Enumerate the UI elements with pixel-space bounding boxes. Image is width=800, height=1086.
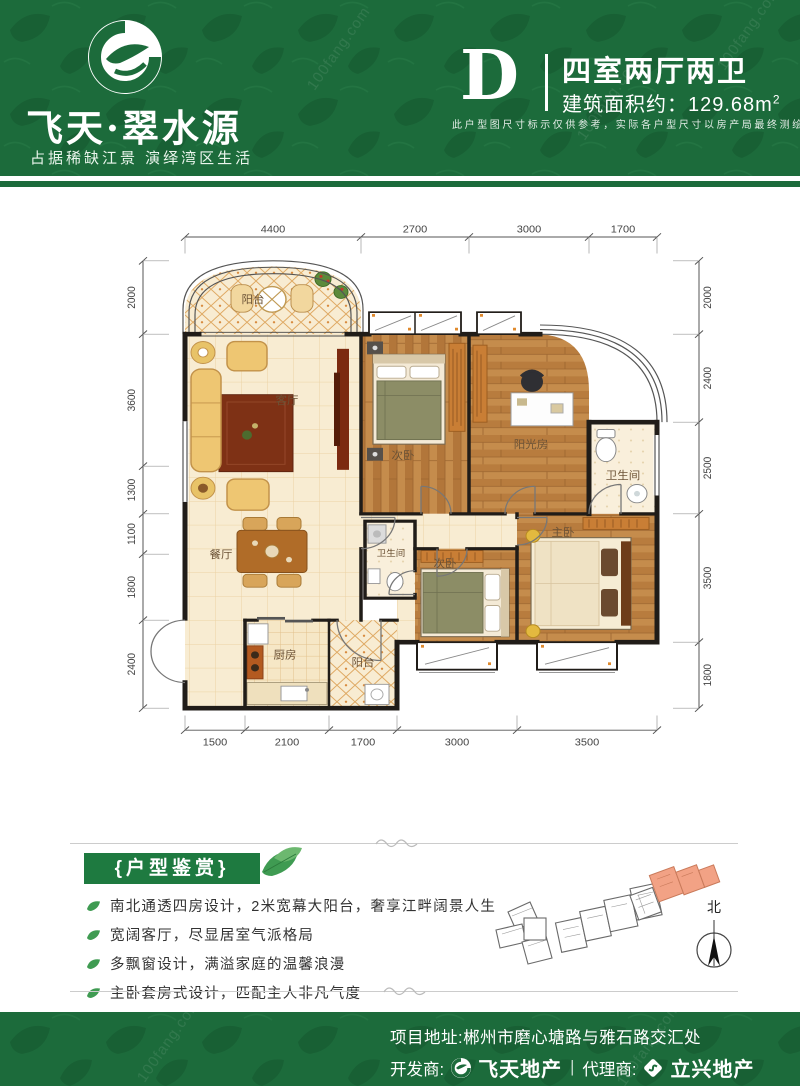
label-bath-mid: 卫生间 — [377, 547, 405, 558]
dim-top-2: 3000 — [517, 224, 542, 235]
dim-bottom-3: 3000 — [445, 737, 470, 748]
furniture-balcony-bottom — [365, 684, 389, 704]
developer-line: 开发商: 飞天地产 | 代理商: 立兴地产 — [390, 1053, 754, 1082]
dim-left-4: 1800 — [126, 576, 139, 599]
label-kitchen: 厨房 — [274, 649, 297, 661]
label-sunroom: 阳光房 — [514, 437, 548, 450]
brand-title: 飞天·翠水源 — [26, 98, 242, 152]
unit-area: 建筑面积约：129.68m2 — [562, 88, 781, 117]
unit-divider — [545, 54, 548, 111]
floorplan: 100fang.com 100fang.com 100fang.com 100f… — [85, 215, 785, 765]
developer-logo-icon — [450, 1057, 472, 1079]
dim-bottom-4: 3500 — [575, 737, 600, 748]
bay-window-master — [537, 642, 617, 672]
ac-platform-top — [369, 312, 461, 334]
label-bath-right: 卫生间 — [606, 468, 640, 481]
point-text: 南北通透四房设计，2米宽幕大阳台，奢享江畔阔景人生 — [110, 895, 496, 916]
developer-name: 飞天地产 — [478, 1053, 562, 1082]
header-band: 100fang.com 100fang.com 100fang.com 飞天·翠… — [0, 0, 800, 176]
brand-logo-icon — [86, 18, 164, 96]
dim-top-3: 1700 — [611, 224, 636, 235]
point-text: 多飘窗设计，满溢家庭的温馨浪漫 — [110, 953, 346, 974]
dim-bottom-0: 1500 — [203, 737, 228, 748]
label-balcony-bottom: 阳台 — [352, 655, 375, 668]
dim-right-4: 1800 — [702, 664, 715, 687]
unit-disclaimer: 此户型图尺寸标示仅供参考，实际各户型尺寸以房产局最终测绘为准 — [452, 116, 800, 131]
divider-ornament — [372, 836, 422, 850]
label-dining: 餐厅 — [210, 547, 233, 560]
agent-label: 代理商: — [582, 1056, 636, 1080]
project-address: 项目地址:郴州市磨心塘路与雅石路交汇处 — [390, 1024, 754, 1048]
leaf-icon — [86, 957, 101, 971]
unit-type: 四室两厅两卫 — [562, 48, 748, 90]
divider-ornament — [380, 984, 430, 998]
area-unit: m — [755, 94, 773, 116]
dim-left-5: 2400 — [126, 653, 139, 676]
dim-left-1: 3600 — [126, 389, 139, 412]
dim-top-0: 4400 — [261, 224, 286, 235]
leaf-icon — [86, 899, 101, 913]
developer-label: 开发商: — [390, 1056, 444, 1080]
footer-band: 100fang.com 100fang.com 项目地址:郴州市磨心塘路与雅石路… — [0, 1012, 800, 1086]
highlighted-unit — [649, 854, 719, 904]
dim-top-1: 2700 — [403, 224, 428, 235]
site-key-plan: 北 — [478, 850, 740, 988]
leaf-icon — [86, 986, 101, 1000]
dim-right-3: 3500 — [702, 567, 715, 590]
area-sup: 2 — [773, 92, 781, 106]
header-separator-green — [0, 181, 800, 187]
dim-left-2: 1300 — [126, 479, 139, 502]
label-balcony-top: 阳台 — [242, 292, 265, 305]
appreciation-badge: {户型鉴赏} — [84, 853, 260, 884]
dim-right-2: 2500 — [702, 457, 715, 480]
agent-name: 立兴地产 — [670, 1053, 754, 1082]
label-bedroom-bottom: 次卧 — [434, 556, 457, 569]
north-label: 北 — [707, 899, 721, 915]
ac-platform-top2 — [477, 312, 521, 334]
footer-info: 项目地址:郴州市磨心塘路与雅石路交汇处 开发商: 飞天地产 | 代理商: 立兴地… — [390, 1024, 754, 1082]
building-footprint — [496, 883, 665, 964]
area-value: 129.68 — [688, 94, 755, 116]
bay-window-bedroom — [417, 642, 497, 672]
dim-right-1: 2400 — [702, 367, 715, 390]
dim-left-3: 1100 — [126, 523, 139, 545]
point-text: 宽阔客厅，尽显居室气派格局 — [110, 924, 314, 945]
label-living: 客厅 — [276, 393, 299, 406]
dim-right-0: 2000 — [702, 286, 715, 309]
dim-bottom-1: 2100 — [275, 737, 300, 748]
label-master: 主卧 — [552, 526, 575, 538]
label-bedroom-top: 次卧 — [392, 448, 415, 461]
dim-left-0: 2000 — [126, 286, 139, 309]
footer-separator: | — [568, 1058, 576, 1077]
point-text: 主卧套房式设计，匹配主人非凡气度 — [110, 982, 361, 1003]
agent-logo-icon — [642, 1057, 664, 1079]
poster-page: 100fang.com 100fang.com 100fang.com 飞天·翠… — [0, 0, 800, 1086]
badge-leaf-icon — [258, 842, 304, 882]
dim-bottom-2: 1700 — [351, 737, 376, 748]
area-prefix: 建筑面积约： — [562, 94, 688, 116]
leaf-icon — [86, 928, 101, 942]
brand-subtitle: 占据稀缺江景 演绎湾区生活 — [30, 147, 253, 168]
north-compass: 北 — [697, 899, 731, 967]
unit-letter: D — [460, 42, 519, 110]
